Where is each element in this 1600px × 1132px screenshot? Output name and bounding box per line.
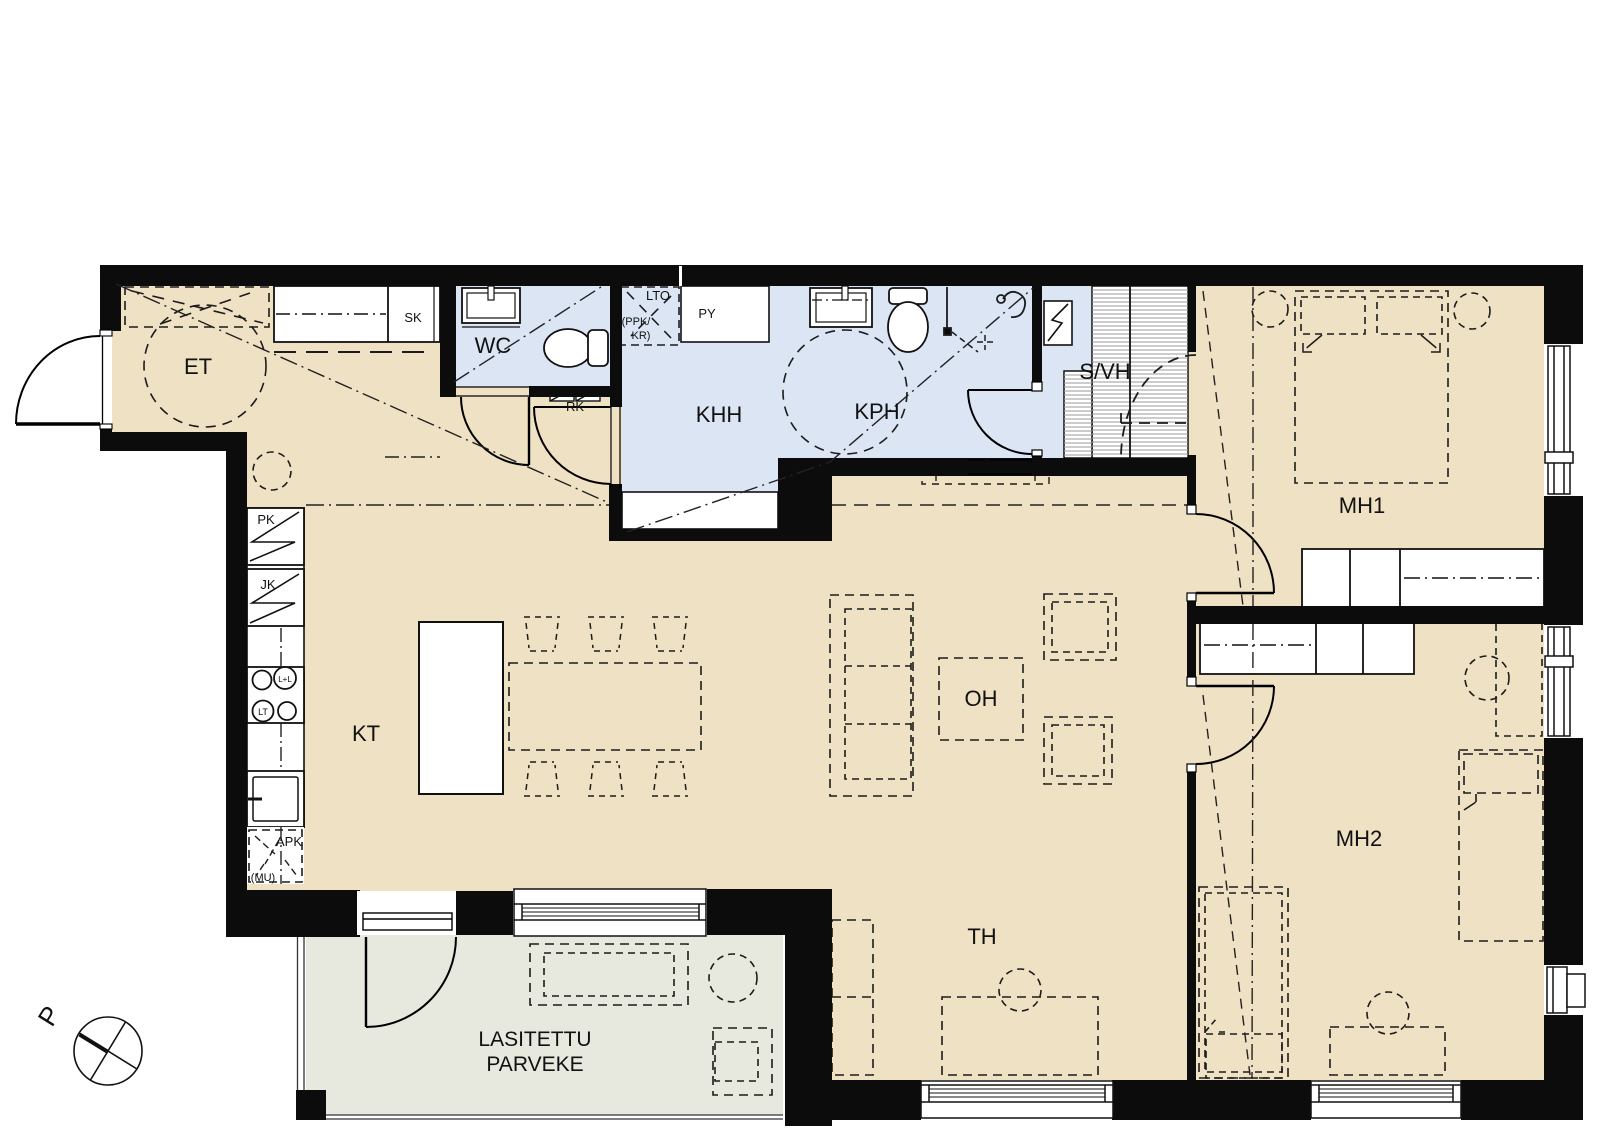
svg-text:LTO: LTO xyxy=(646,288,670,303)
svg-text:L+L: L+L xyxy=(278,675,292,684)
svg-text:OH: OH xyxy=(965,686,998,711)
svg-text:KPH: KPH xyxy=(854,399,899,424)
svg-text:LASITETTU: LASITETTU xyxy=(478,1028,591,1051)
svg-text:PK: PK xyxy=(257,512,275,527)
svg-text:MH1: MH1 xyxy=(1339,493,1385,518)
svg-text:MH2: MH2 xyxy=(1336,826,1382,851)
svg-text:(MU): (MU) xyxy=(251,872,275,884)
svg-text:ET: ET xyxy=(184,354,212,379)
svg-text:S/VH: S/VH xyxy=(1079,359,1130,384)
svg-text:LT: LT xyxy=(258,707,268,717)
svg-text:RK: RK xyxy=(566,399,584,414)
svg-text:KT: KT xyxy=(352,721,380,746)
svg-text:KR): KR) xyxy=(632,330,651,342)
svg-text:JK: JK xyxy=(260,577,276,592)
svg-text:KHH: KHH xyxy=(696,402,742,427)
svg-text:SK: SK xyxy=(404,310,422,325)
svg-text:(PPK/: (PPK/ xyxy=(622,316,652,328)
svg-text:APK: APK xyxy=(276,834,302,849)
svg-text:TH: TH xyxy=(967,924,996,949)
svg-text:PARVEKE: PARVEKE xyxy=(486,1053,583,1076)
svg-text:WC: WC xyxy=(475,333,512,358)
svg-text:PY: PY xyxy=(698,306,716,321)
